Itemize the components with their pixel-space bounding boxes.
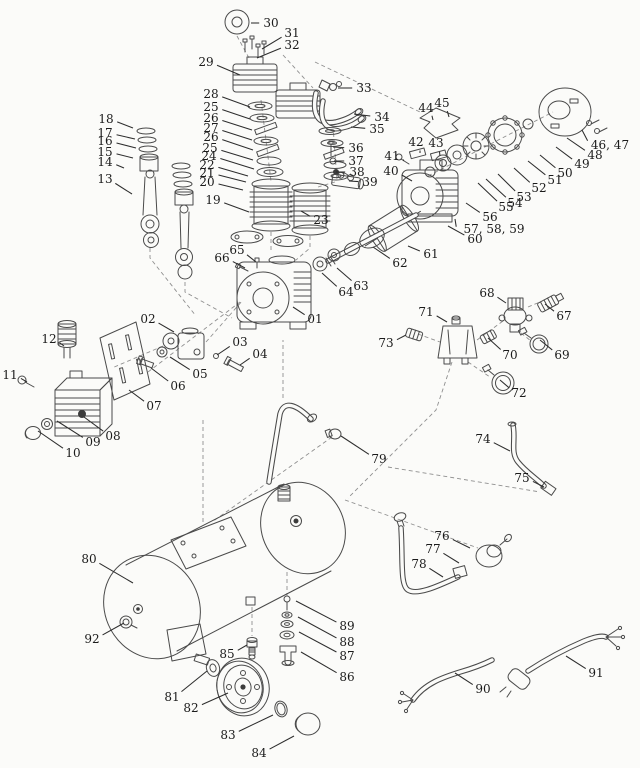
valve-stack-a (248, 102, 283, 177)
leader-line-54 (486, 179, 506, 197)
leader-line-22 (218, 167, 248, 176)
leader-line-61 (408, 246, 420, 251)
leader-line-80 (99, 563, 133, 583)
wheel-assembly (205, 652, 320, 735)
leader-line-85 (238, 645, 247, 650)
piston-rod-a (137, 128, 159, 248)
leader-line-57-58-59 (455, 219, 456, 227)
part-callout-66: 66 (214, 251, 229, 265)
leader-line-35 (351, 127, 365, 128)
part-callout-87: 87 (339, 649, 354, 663)
part-callout-49: 49 (574, 157, 589, 171)
part-callout-28: 28 (203, 87, 218, 101)
part-callout-68: 68 (479, 286, 494, 300)
part-callout-41: 41 (384, 149, 399, 163)
part-callout-55: 55 (498, 200, 513, 214)
part-callout-76: 76 (434, 529, 449, 543)
part-callout-09: 09 (85, 435, 100, 449)
part-callout-82: 82 (183, 701, 198, 715)
leader-line-74 (494, 443, 510, 451)
leader-line-18 (117, 122, 133, 128)
leader-line-31 (262, 37, 282, 49)
leader-line-44 (432, 116, 433, 120)
leader-line-76 (453, 540, 470, 548)
leader-line-04 (240, 358, 250, 365)
leader-line-02 (159, 323, 174, 332)
leader-line-60 (448, 226, 464, 235)
part-callout-04: 04 (252, 347, 268, 361)
leader-line-01 (293, 307, 305, 315)
part-callout-71: 71 (418, 305, 433, 319)
leader-line-86 (301, 652, 337, 673)
gauge-69 (518, 327, 548, 353)
leader-line-50 (540, 155, 555, 168)
cylinder-a (231, 179, 292, 243)
leader-line-43 (439, 152, 440, 156)
leader-line-27 (222, 131, 252, 140)
leader-line-91 (566, 656, 586, 669)
leader-line-32 (257, 48, 281, 58)
piston-rod-b (172, 163, 193, 279)
end-bell (539, 88, 607, 136)
part-callout-63: 63 (353, 279, 368, 293)
leader-line-73 (397, 335, 406, 340)
part-callout-72: 72 (511, 386, 526, 400)
part-callout-18: 18 (98, 112, 113, 126)
leader-line-09 (57, 421, 83, 437)
leader-line-20 (219, 184, 243, 190)
leader-line-55 (478, 183, 497, 201)
part-callout-19: 19 (205, 193, 220, 207)
part-callout-80: 80 (81, 552, 96, 566)
part-callout-36: 36 (348, 141, 363, 155)
part-callout-75: 75 (514, 471, 529, 485)
part-callout-02: 02 (140, 312, 155, 326)
foot-fastener-stack (280, 596, 296, 666)
leader-line-77 (443, 553, 459, 563)
leader-line-52 (514, 168, 530, 182)
leader-line-71 (437, 316, 447, 322)
gasket-plate-07 (100, 322, 150, 400)
leader-line-16 (117, 143, 136, 148)
leader-line-51 (528, 161, 545, 175)
leader-line-68 (497, 297, 506, 303)
part-callout-48: 48 (587, 148, 602, 162)
leader-line-82 (202, 693, 228, 705)
part-callout-43: 43 (428, 136, 443, 150)
part-callout-05: 05 (192, 367, 207, 381)
part-callout-90: 90 (475, 682, 490, 696)
part-callout-92: 92 (84, 632, 99, 646)
leader-line-84 (270, 736, 294, 749)
leader-line-46-47 (582, 130, 588, 141)
part-callout-74: 74 (475, 432, 491, 446)
head-bolts-31-32 (243, 36, 266, 57)
leader-line-07 (129, 390, 144, 401)
leader-line-21 (218, 175, 246, 182)
part-callout-45: 45 (434, 96, 449, 110)
part-callout-69: 69 (554, 348, 569, 362)
part-callout-40: 40 (383, 164, 398, 178)
part-callout-11: 11 (2, 368, 17, 382)
part-callout-33: 33 (356, 81, 371, 95)
part-callout-77: 77 (425, 542, 440, 556)
part-callout-60: 60 (467, 232, 482, 246)
leader-line-13 (115, 183, 132, 194)
part-callout-73: 73 (378, 336, 393, 350)
drain-valve (247, 638, 257, 660)
part-callout-61: 61 (423, 247, 438, 261)
callouts: 3031322933343528252627262524222120191817… (2, 16, 629, 760)
pressure-switch (438, 316, 477, 364)
part-callout-44: 44 (418, 101, 434, 115)
fitting-70 (480, 329, 497, 344)
leader-line-90 (455, 673, 473, 685)
leader-line-25 (221, 150, 253, 160)
part-callout-20: 20 (199, 175, 214, 189)
part-callout-10: 10 (65, 446, 80, 460)
power-cord-91 (500, 626, 625, 697)
part-callout-39: 39 (362, 175, 377, 189)
leader-line-26 (222, 140, 253, 150)
part-callout-08: 08 (105, 429, 120, 443)
part-callout-91: 91 (588, 666, 603, 680)
leader-line-25 (222, 110, 250, 119)
part-callout-64: 64 (338, 285, 354, 299)
part-callout-35: 35 (369, 122, 384, 136)
part-callout-81: 81 (164, 690, 179, 704)
part-callout-29: 29 (198, 55, 213, 69)
part-callout-62: 62 (392, 256, 407, 270)
leader-line-36 (333, 147, 344, 148)
part-callout-51: 51 (547, 173, 562, 187)
part-callout-85: 85 (219, 647, 234, 661)
leader-line-28 (222, 97, 250, 107)
leader-line-06 (151, 368, 168, 381)
part-callout-79: 79 (371, 452, 386, 466)
part-callout-23: 23 (313, 213, 328, 227)
part-callout-88: 88 (339, 635, 354, 649)
intake-filter (58, 321, 76, 359)
transfer-tube-78 (393, 511, 513, 592)
leader-line-72 (500, 380, 509, 388)
leader-line-83 (239, 715, 273, 731)
leader-line-70 (488, 338, 501, 349)
leader-line-79 (341, 436, 369, 454)
leader-line-26 (222, 121, 252, 130)
part-callout-42: 42 (408, 135, 423, 149)
part-callout-30: 30 (263, 16, 278, 30)
leader-line-56 (466, 203, 480, 212)
leader-line-10 (38, 431, 63, 448)
exploded-parts-diagram: 3031322933343528252627262524222120191817… (0, 0, 640, 768)
part-callout-86: 86 (339, 670, 354, 684)
part-callout-83: 83 (220, 728, 235, 742)
leader-line-66 (233, 262, 245, 268)
leader-line-03 (217, 346, 230, 355)
part-callout-67: 67 (556, 309, 571, 323)
leader-line-14 (116, 165, 124, 168)
manifold-block (18, 371, 112, 440)
part-callout-14: 14 (97, 155, 113, 169)
leader-line-53 (498, 174, 515, 191)
leader-line-78 (429, 568, 443, 577)
unloader-assembly (137, 328, 245, 372)
leader-line-48 (567, 138, 585, 150)
part-callout-07: 07 (146, 399, 161, 413)
part-callout-84: 84 (251, 746, 267, 760)
diagram-svg: 3031322933343528252627262524222120191817… (0, 0, 640, 768)
leader-line-81 (181, 671, 207, 692)
part-callout-01: 01 (307, 312, 322, 326)
leader-line-17 (117, 135, 135, 139)
part-callout-89: 89 (339, 619, 354, 633)
leader-line-45 (447, 111, 449, 117)
leader-line-39 (349, 181, 358, 182)
leader-line-19 (224, 203, 249, 212)
leader-line-64 (322, 273, 337, 286)
part-callout-32: 32 (284, 38, 299, 52)
part-callout-12: 12 (41, 332, 56, 346)
part-callout-06: 06 (170, 379, 185, 393)
part-callout-13: 13 (97, 172, 112, 186)
part-callout-65: 65 (229, 243, 244, 257)
leader-line-69 (540, 340, 552, 350)
part-callout-52: 52 (531, 181, 546, 195)
cap-30 (225, 10, 249, 34)
leader-line-49 (556, 147, 572, 159)
crankcase (235, 256, 311, 329)
leader-line-15 (117, 154, 133, 158)
part-callout-78: 78 (411, 557, 426, 571)
leader-line-62 (373, 247, 390, 258)
gauge-72 (482, 364, 514, 394)
leader-line-24 (220, 158, 254, 169)
regulator (499, 298, 532, 332)
part-callout-70: 70 (502, 348, 517, 362)
leader-line-63 (337, 268, 352, 281)
part-callout-03: 03 (232, 335, 247, 349)
